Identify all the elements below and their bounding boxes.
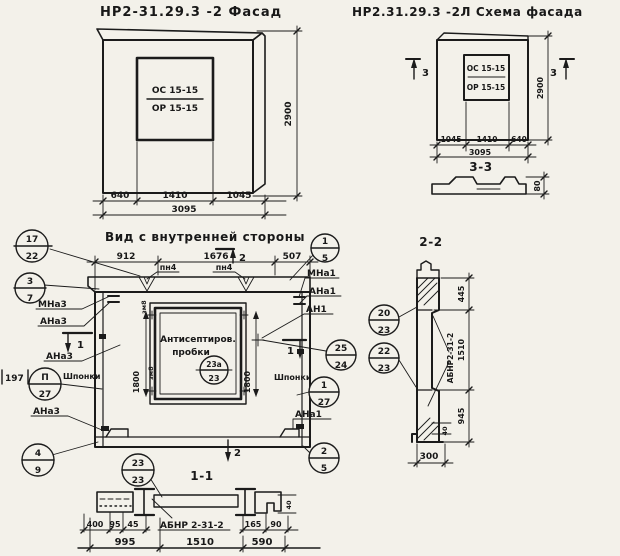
top-beam-band: [88, 277, 310, 292]
section-1-1-title: 1-1: [190, 469, 213, 483]
dim-197: 197: [5, 374, 24, 384]
keyway-notch: [297, 349, 304, 354]
dim-45: 45: [127, 520, 139, 529]
sec11-panel-mark: АБНР 2-31-2: [160, 521, 224, 531]
section-2-2: 2-2 АБНР2-31-2 40 445 1510 945 300 20 23…: [369, 235, 474, 467]
dim-1676: 1676: [203, 252, 228, 262]
hatch-lines: [418, 418, 438, 440]
facade-panel-side-face: [253, 33, 265, 193]
callout-top: 4: [35, 449, 41, 459]
callout-top: 2: [321, 447, 327, 457]
facade-window-mark-bottom: ОР 15-15: [152, 104, 198, 114]
dim-95: 95: [109, 520, 121, 529]
leader: [399, 360, 416, 387]
inner-side-view: Вид с внутренней стороны 912 1676 507 2 …: [2, 230, 356, 497]
dim-1045: 1045: [441, 135, 462, 144]
label-leader: [31, 416, 102, 430]
section3-marker-left-label: 3: [422, 68, 429, 79]
label-ana1: АНа1: [295, 410, 322, 420]
facade-panel: [103, 40, 253, 193]
callout-bottom: 22: [26, 252, 39, 262]
inner-view-title: Вид с внутренней стороны: [105, 230, 305, 244]
corner-bearing-pads: [106, 429, 299, 437]
arrow-down-icon: [253, 389, 259, 397]
dim-40: 40: [285, 500, 293, 510]
keyway-notch: [99, 334, 106, 339]
callout-bottom: 23: [378, 364, 391, 374]
corner-mark: зм8: [140, 300, 148, 314]
leader: [52, 442, 98, 455]
label-mna3: МНа3: [38, 300, 67, 310]
pn4-label: пн4: [216, 263, 233, 272]
dim-1045: 1045: [226, 191, 251, 201]
callout-bottom: 23: [132, 476, 145, 486]
callout-top: 3: [27, 277, 33, 287]
pn4-label: пн4: [160, 263, 177, 272]
label-leader: [262, 314, 333, 338]
sec11-right-block: [255, 492, 281, 513]
sec22-right-edge: [432, 278, 439, 442]
jamb-webs: [144, 490, 245, 514]
dim-3095: 3095: [171, 205, 196, 215]
drawing-sheet: НР2-31.29.3 -2 Фасад ОС 15-15 ОР 15-15 2…: [0, 0, 620, 556]
facade-view: НР2-31.29.3 -2 Фасад ОС 15-15 ОР 15-15 2…: [93, 5, 302, 219]
callout-top: 22: [378, 347, 391, 357]
section-3-3-title: 3-3: [469, 160, 492, 174]
callout-bottom: 23: [208, 374, 219, 383]
sec22-top-cap: [417, 261, 439, 278]
dim-300: 300: [420, 452, 439, 462]
label-ana3: АНа3: [46, 352, 73, 362]
band-notches: [139, 277, 254, 291]
label-ana1: АНа1: [309, 287, 336, 297]
label-ana3: АНа3: [40, 317, 67, 327]
callout-bottom: 5: [322, 254, 328, 264]
callout-top: 1: [322, 237, 328, 247]
callout-top: 25: [335, 344, 348, 354]
callout-bottom: 23: [378, 326, 391, 336]
dim-995: 995: [115, 537, 136, 548]
window-note-line1: Антисептиров.: [160, 335, 236, 345]
callout-bottom: 24: [335, 361, 348, 371]
label-mna1: МНа1: [307, 269, 336, 279]
section-3-3-profile: [432, 177, 526, 194]
section-2-2-title: 2-2: [419, 235, 442, 249]
hatch-lines: [418, 278, 439, 305]
scheme-window-mark-bottom: ОР 15-15: [467, 83, 505, 92]
facade-panel-top-face: [97, 29, 262, 40]
pn4-leader: [147, 272, 179, 279]
callout-bottom: 5: [321, 464, 327, 474]
section1-marker-right-label: 1: [287, 346, 294, 357]
leader: [399, 307, 417, 317]
callout-top: П: [41, 373, 49, 383]
scheme-window: [464, 55, 509, 100]
sec22-panel-mark: АБНР2-31-2: [446, 333, 455, 383]
callout-top: 17: [26, 235, 39, 245]
callout-top: 23: [132, 459, 145, 469]
label-shponki-right: Шпонки: [274, 373, 311, 382]
section-1-1: 1-1 40 АБНР 2-31-2 400 95 45 165 90 995 …: [78, 469, 320, 552]
dim-912: 912: [117, 252, 136, 262]
dim-1800-right: 1800: [243, 370, 252, 393]
pn4-leader: [213, 272, 245, 279]
sec11-left-block: [97, 492, 133, 512]
section1-marker-left-label: 1: [77, 340, 84, 351]
edge-anchor-dashes: [108, 296, 119, 302]
callout-bottom: 27: [39, 390, 52, 400]
label-an1: АН1: [306, 305, 327, 315]
jamb-flanges: [135, 489, 255, 515]
dim-400: 400: [87, 520, 104, 529]
facade-scheme-view: НР2.31.29.3 -2Л Схема фасада ОС 15-15 ОР…: [352, 5, 583, 199]
section2-marker-bottom-label: 2: [234, 448, 241, 459]
arrow-down-icon: [143, 389, 149, 397]
leader: [262, 340, 326, 351]
keyway-notch: [296, 424, 304, 429]
dim-165: 165: [245, 520, 262, 529]
dim-445: 445: [457, 285, 466, 302]
callout-top: 20: [378, 309, 391, 319]
scheme-window-mark-top: ОС 15-15: [467, 64, 505, 73]
callout-top: 1: [321, 381, 327, 391]
label-ana3: АНа3: [33, 407, 60, 417]
scheme-panel-top-strip: [437, 33, 528, 40]
leader: [297, 392, 309, 395]
dim-1510: 1510: [186, 537, 214, 548]
dim-640: 640: [511, 135, 527, 144]
dim-90: 90: [270, 520, 282, 529]
arrow-up-icon: [253, 311, 259, 319]
dim-945: 945: [457, 407, 466, 424]
label-shponki-left: Шпонки: [63, 372, 100, 381]
arrow-down-icon: [225, 452, 231, 462]
scheme-title: НР2.31.29.3 -2Л Схема фасада: [352, 5, 583, 19]
facade-height-dim: 2900: [284, 101, 294, 126]
section3-marker-right-label: 3: [550, 68, 557, 79]
callout-top: 23а: [206, 360, 222, 369]
dim-640: 640: [111, 191, 130, 201]
window-note-line2: пробки: [172, 347, 210, 358]
profile-dim-80: 80: [533, 180, 542, 192]
callout-bottom: 27: [318, 398, 331, 408]
dim-507: 507: [283, 252, 302, 262]
dim-40: 40: [441, 426, 449, 436]
dim-1510: 1510: [457, 338, 466, 361]
scheme-height-dim: 2900: [536, 76, 545, 99]
technical-drawing: НР2-31.29.3 -2 Фасад ОС 15-15 ОР 15-15 2…: [0, 0, 620, 556]
leader: [44, 285, 99, 289]
sec11-sill: [154, 495, 238, 507]
section2-marker-top-label: 2: [239, 253, 246, 264]
height-dim-lines: [253, 26, 302, 201]
callout-bottom: 7: [27, 294, 33, 304]
dim-3095: 3095: [469, 148, 492, 157]
dim-1410: 1410: [477, 135, 498, 144]
corner-mark: зм8: [147, 366, 155, 380]
dim-1410: 1410: [162, 191, 187, 201]
dim-1800-left: 1800: [132, 370, 141, 393]
facade-title: НР2-31.29.3 -2 Фасад: [100, 5, 282, 20]
callout-bottom: 9: [35, 466, 41, 476]
dim-590: 590: [252, 537, 273, 548]
sec22-window-lines: [417, 310, 432, 390]
facade-window-mark-top: ОС 15-15: [152, 86, 198, 96]
leader: [150, 478, 162, 497]
